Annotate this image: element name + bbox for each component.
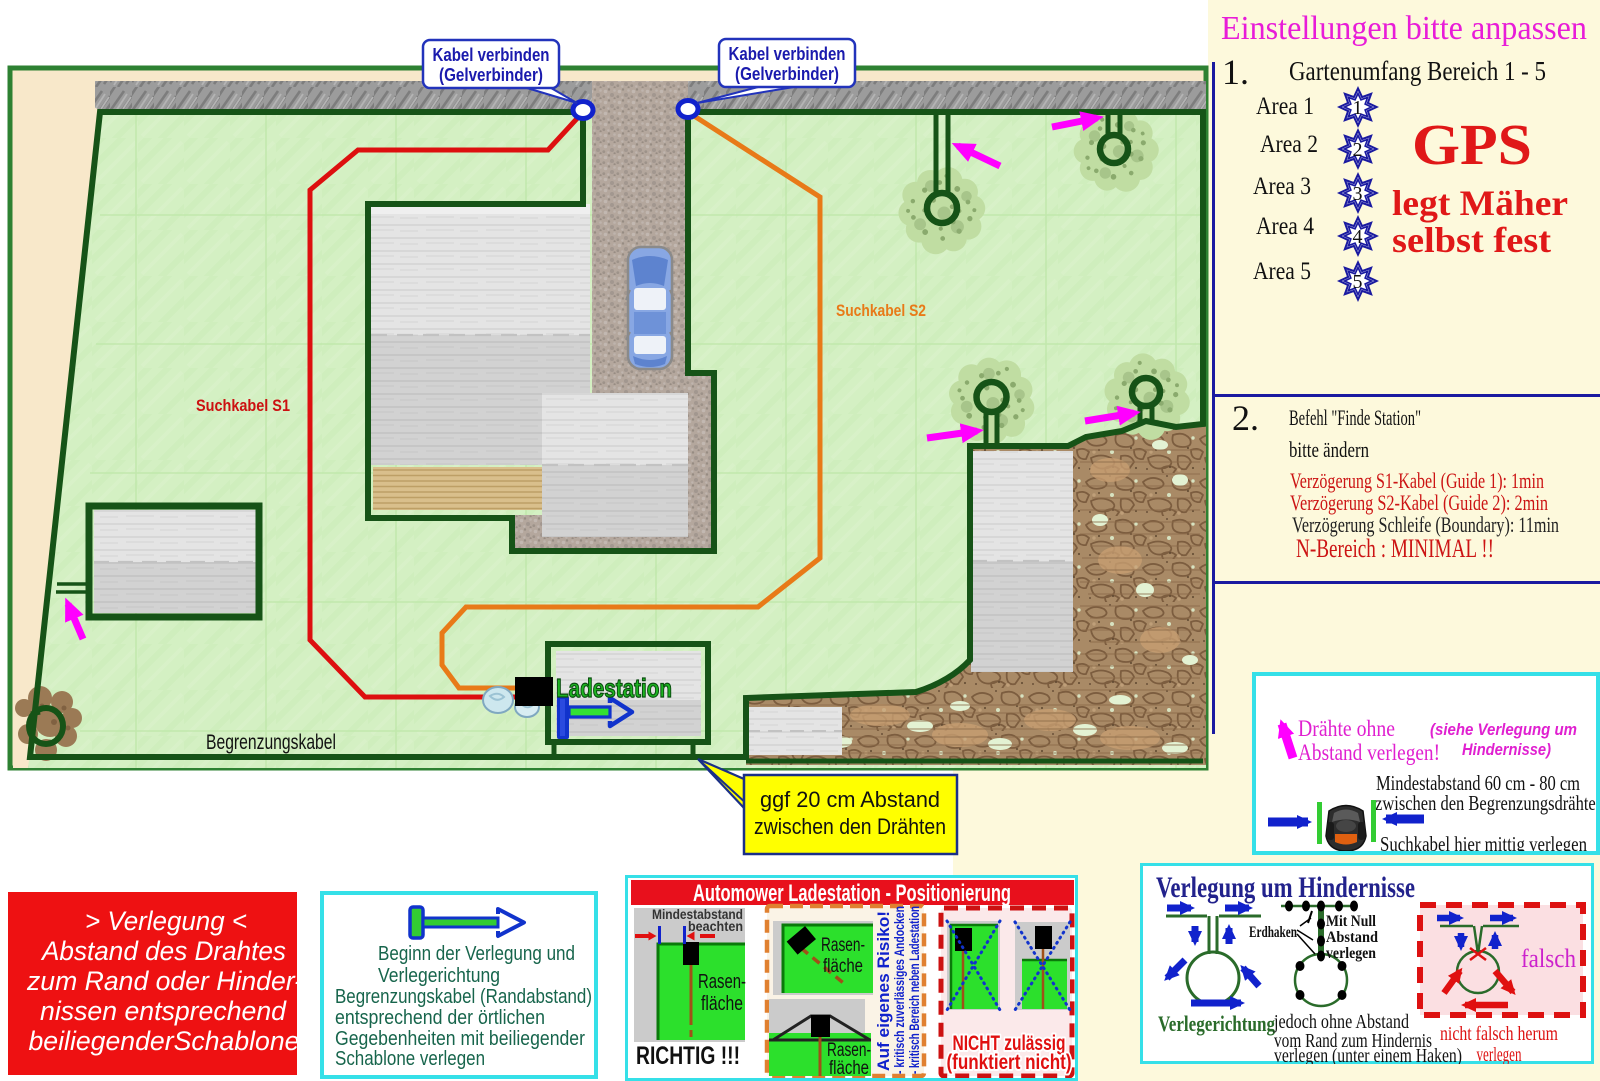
svg-text:1: 1 [1353,97,1363,119]
svg-text:Verlegerichtung: Verlegerichtung [1158,1011,1275,1036]
svg-text:Suchkabel hier mittig verlegen: Suchkabel hier mittig verlegen [1380,832,1587,851]
svg-text:Verlegung um Hindernisse: Verlegung um Hindernisse [1156,871,1415,904]
svg-text:Befehl "Finde Station": Befehl "Finde Station" [1289,405,1421,430]
svg-text:selbst fest: selbst fest [1392,220,1551,260]
svg-text:verlegen (unter einem Haken): verlegen (unter einem Haken) [1274,1045,1462,1064]
svg-text:fläche: fläche [829,1058,869,1078]
svg-text:zwischen den Begrenzungsdrähte: zwischen den Begrenzungsdrähten [1375,791,1596,815]
svg-text:2: 2 [1353,139,1363,161]
svg-text:Area 3: Area 3 [1253,173,1311,200]
svg-text:Drähte ohne: Drähte ohne [1298,716,1395,741]
svg-text:GPS: GPS [1412,112,1532,177]
svg-text:Area 2: Area 2 [1260,131,1318,158]
svg-text:3: 3 [1353,183,1363,205]
svg-text:fläche: fläche [701,993,743,1015]
svg-text:Erdhaken: Erdhaken [1249,924,1297,941]
svg-text:bitte ändern: bitte ändern [1289,437,1369,462]
svg-text:2.: 2. [1232,398,1259,438]
svg-text:Ladestation: Ladestation [556,673,672,703]
svg-text:Hindernisse): Hindernisse) [1462,740,1551,759]
svg-text:Automower Ladestation - Positi: Automower Ladestation - Positionierung [693,880,1011,907]
svg-text:5: 5 [1353,271,1363,293]
svg-text:Begrenzungskabel: Begrenzungskabel [206,731,336,754]
svg-text:Verlegerichtung: Verlegerichtung [378,965,500,987]
svg-text:Abstand des Drahtes: Abstand des Drahtes [40,936,286,966]
svg-text:beiliegenderSchablone: beiliegenderSchablone [29,1026,298,1056]
svg-text:(siehe Verlegung um: (siehe Verlegung um [1430,720,1577,739]
svg-text:Area 1: Area 1 [1256,93,1314,120]
svg-text:Rasen-: Rasen- [821,935,865,956]
svg-text:Abstand: Abstand [1326,929,1378,946]
svg-text:Abstand verlegen!: Abstand verlegen! [1298,740,1440,765]
svg-text:Begrenzungskabel (Randabstand): Begrenzungskabel (Randabstand) [335,986,592,1008]
svg-text:Schablone verlegen: Schablone verlegen [335,1048,485,1070]
svg-text:fläche: fläche [823,956,863,977]
svg-text:Area 4: Area 4 [1256,213,1314,240]
svg-text:Beginn der Verlegung und: Beginn der Verlegung und [378,943,575,965]
svg-text:legt Mäher: legt Mäher [1392,183,1568,223]
svg-text:Mit Null: Mit Null [1326,913,1376,930]
svg-text:Gegebenheiten mit beiliegender: Gegebenheiten mit beiliegender [335,1028,585,1050]
svg-text:nissen entsprechend: nissen entsprechend [40,996,287,1026]
svg-text:zum Rand oder Hinder-: zum Rand oder Hinder- [26,966,297,996]
svg-text:beachten: beachten [688,918,743,934]
svg-text:N-Bereich : MINIMAL !!: N-Bereich : MINIMAL !! [1296,534,1494,563]
svg-text:RICHTIG !!!: RICHTIG !!! [636,1042,740,1070]
svg-text:- kritisch Bereich neben Lades: - kritisch Bereich neben Ladestation [906,906,922,1074]
svg-text:ggf 20 cm Abstand: ggf 20 cm Abstand [760,787,940,812]
svg-text:> Verlegung <: > Verlegung < [85,906,247,936]
svg-text:4: 4 [1353,226,1363,248]
svg-text:(funktiert nicht): (funktiert nicht) [947,1051,1072,1074]
svg-text:nicht falsch herum: nicht falsch herum [1440,1023,1558,1045]
svg-text:Einstellungen bitte anpassen: Einstellungen bitte anpassen [1221,10,1587,47]
svg-text:falsch: falsch [1521,944,1576,973]
svg-text:- kritisch zuverlässiges Andoc: - kritisch zuverlässiges Andocken [891,906,907,1074]
svg-text:verlegen: verlegen [1326,945,1376,962]
svg-text:zwischen den Drähten: zwischen den Drähten [754,814,946,839]
svg-text:verlegen: verlegen [1477,1044,1522,1064]
svg-text:Gartenumfang Bereich 1 - 5: Gartenumfang Bereich 1 - 5 [1289,56,1546,86]
svg-text:1.: 1. [1222,52,1249,92]
svg-text:entsprechend der örtlichen: entsprechend der örtlichen [335,1007,545,1029]
svg-text:Rasen-: Rasen- [698,971,746,993]
svg-text:Area 5: Area 5 [1253,258,1311,285]
